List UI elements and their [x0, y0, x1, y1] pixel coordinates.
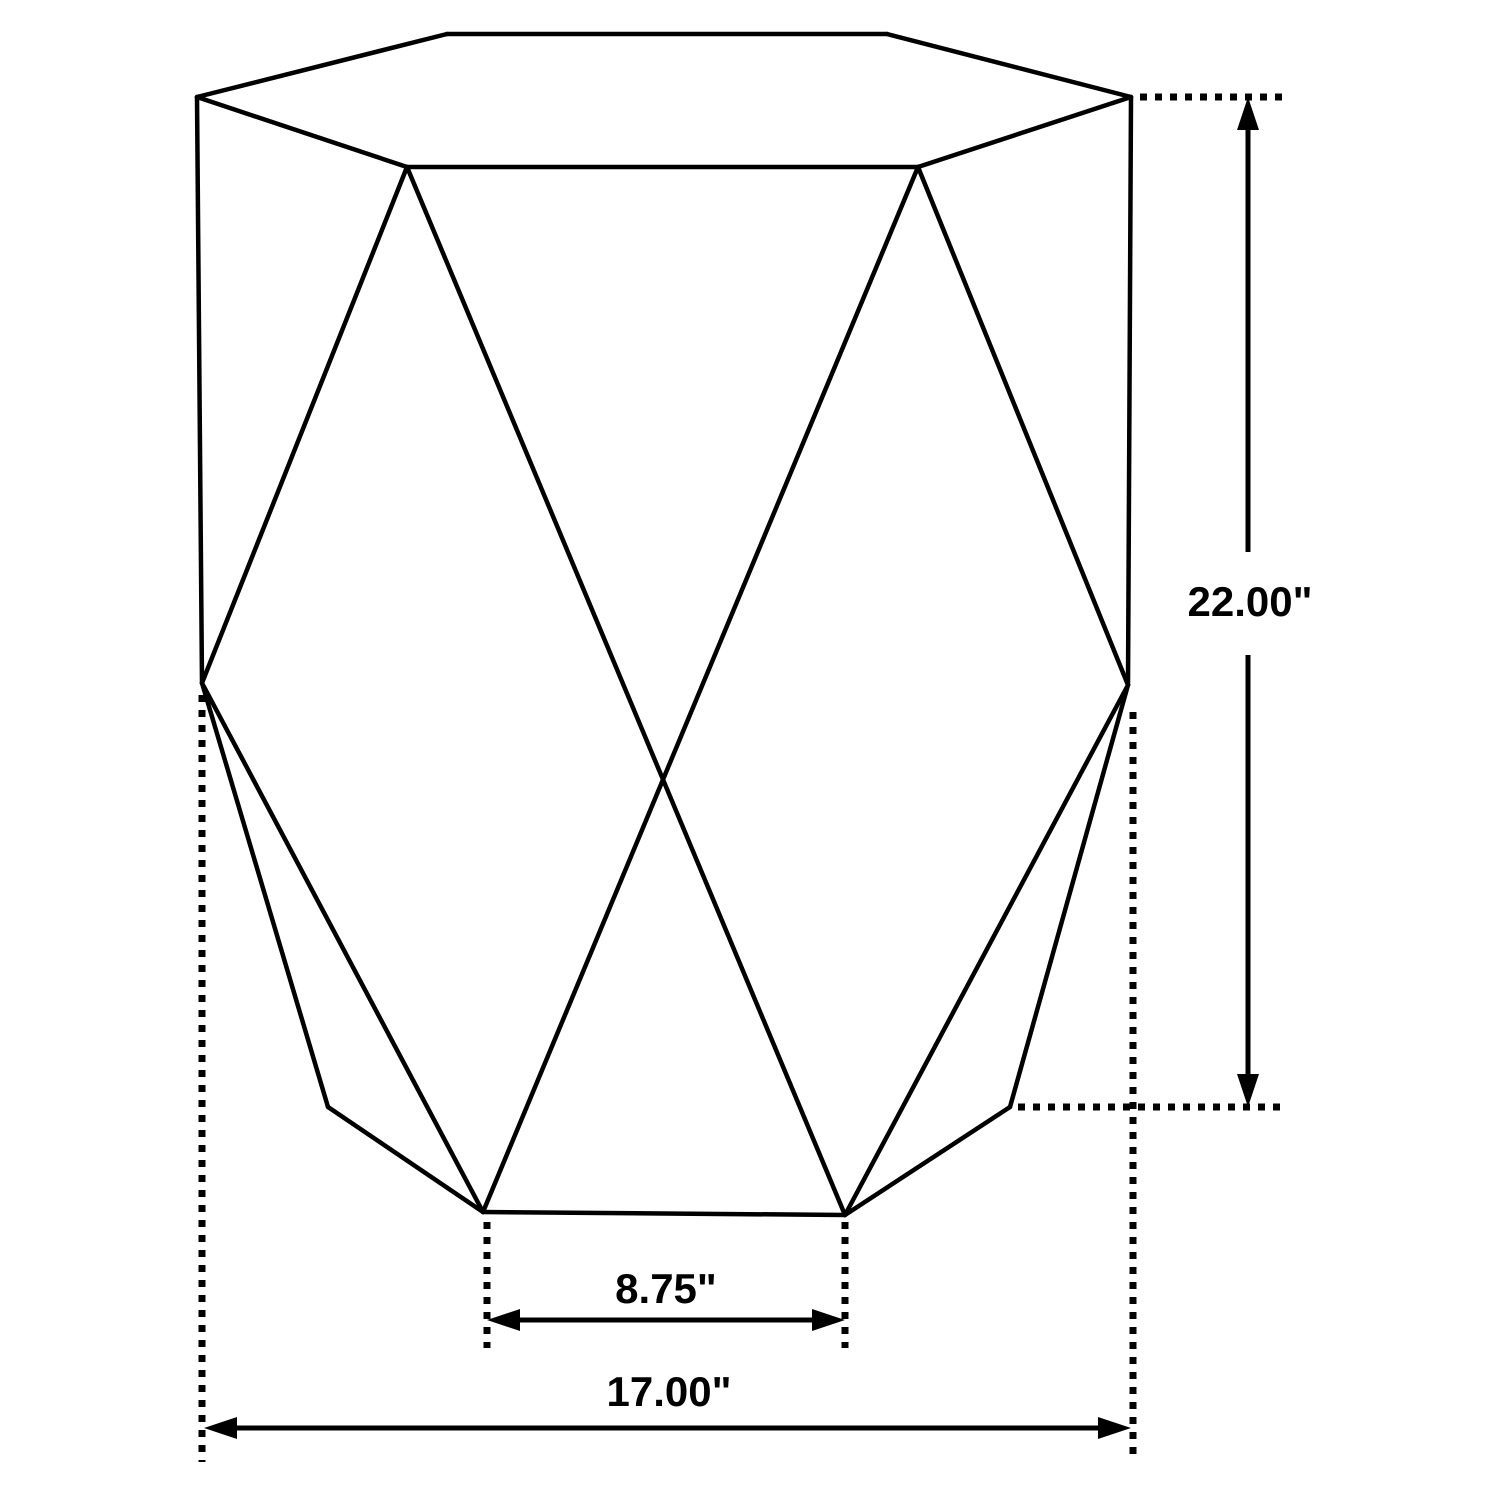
- table-edge-0: [197, 34, 447, 97]
- table-edge-5: [918, 97, 1131, 167]
- table-edge-9: [328, 1107, 483, 1212]
- table-edge-12: [1010, 685, 1128, 1107]
- table-edge-10: [483, 1212, 845, 1215]
- table-edge-13: [202, 167, 407, 683]
- table-edge-14: [918, 167, 1128, 685]
- overall-width-dimension-label: 17.00": [606, 1368, 731, 1416]
- table-edge-2: [887, 34, 1131, 97]
- table-edge-17: [202, 683, 483, 1212]
- table-edge-15: [407, 167, 845, 1215]
- table-line-drawing: [0, 0, 1500, 1500]
- table-edge-18: [845, 685, 1128, 1215]
- dimension-lines: [204, 97, 1259, 1439]
- table-edges: [197, 34, 1131, 1215]
- table-edge-16: [483, 167, 918, 1212]
- table-edge-3: [197, 97, 407, 167]
- table-edge-8: [202, 683, 328, 1107]
- dotted-extension-lines: [202, 97, 1282, 1462]
- table-edge-7: [1128, 97, 1131, 685]
- height-dimension-label: 22.00": [1187, 578, 1312, 626]
- table-edge-11: [845, 1107, 1010, 1215]
- dimension-diagram: 22.00" 8.75" 17.00": [0, 0, 1500, 1500]
- base-width-dimension-label: 8.75": [615, 1265, 717, 1313]
- table-edge-6: [197, 97, 202, 683]
